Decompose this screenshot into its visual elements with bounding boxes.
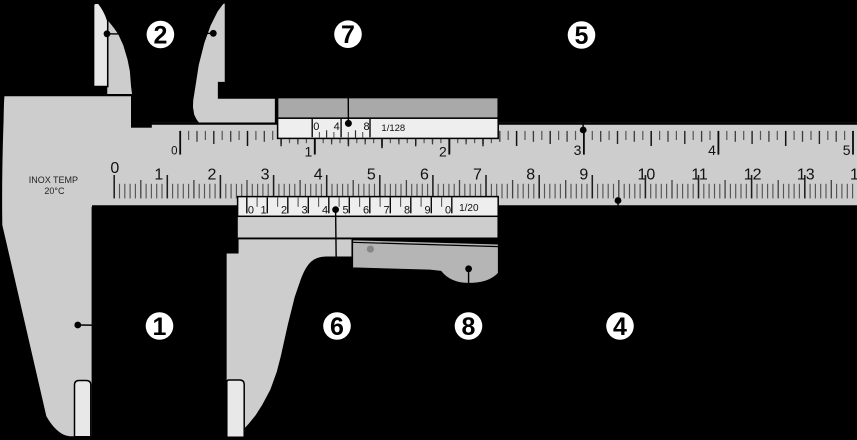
svg-text:20°C: 20°C xyxy=(44,186,65,196)
svg-text:8: 8 xyxy=(404,204,410,216)
svg-text:6: 6 xyxy=(420,166,429,183)
svg-text:1/128: 1/128 xyxy=(381,123,405,134)
svg-text:5: 5 xyxy=(843,142,851,158)
svg-text:0: 0 xyxy=(445,204,451,216)
svg-text:9: 9 xyxy=(424,204,430,216)
svg-text:14: 14 xyxy=(850,166,857,183)
svg-text:8: 8 xyxy=(526,166,535,183)
svg-text:12: 12 xyxy=(744,166,762,183)
svg-text:5: 5 xyxy=(575,22,589,50)
svg-text:8: 8 xyxy=(462,313,476,341)
svg-text:7: 7 xyxy=(383,204,389,216)
svg-text:4: 4 xyxy=(613,313,627,341)
svg-text:INOX TEMP: INOX TEMP xyxy=(29,175,78,185)
svg-text:5: 5 xyxy=(342,204,348,216)
svg-text:7: 7 xyxy=(341,21,355,49)
svg-text:2: 2 xyxy=(153,22,167,50)
svg-text:4: 4 xyxy=(708,142,716,158)
svg-text:11: 11 xyxy=(691,166,708,183)
svg-text:0: 0 xyxy=(313,121,319,133)
svg-text:0: 0 xyxy=(248,204,254,216)
svg-text:4: 4 xyxy=(334,121,340,133)
svg-text:2: 2 xyxy=(207,166,216,183)
svg-text:0: 0 xyxy=(110,160,119,177)
svg-text:1: 1 xyxy=(260,204,266,216)
svg-text:9: 9 xyxy=(579,166,588,183)
svg-text:10: 10 xyxy=(638,166,656,183)
svg-text:1/20: 1/20 xyxy=(459,203,479,214)
svg-text:4: 4 xyxy=(314,166,323,183)
svg-text:4: 4 xyxy=(322,204,328,216)
svg-text:0: 0 xyxy=(171,145,177,157)
svg-text:8: 8 xyxy=(364,121,370,133)
svg-text:3: 3 xyxy=(574,142,582,158)
svg-text:2: 2 xyxy=(439,144,447,160)
svg-text:13: 13 xyxy=(797,166,815,183)
svg-text:7: 7 xyxy=(473,166,482,183)
svg-text:6: 6 xyxy=(330,313,344,341)
svg-text:1: 1 xyxy=(154,166,163,183)
svg-text:3: 3 xyxy=(301,204,307,216)
svg-text:3: 3 xyxy=(261,166,270,183)
svg-text:1: 1 xyxy=(153,313,167,341)
svg-text:6: 6 xyxy=(363,204,369,216)
svg-text:5: 5 xyxy=(367,166,376,183)
svg-text:1: 1 xyxy=(305,144,313,160)
svg-text:2: 2 xyxy=(281,204,287,216)
